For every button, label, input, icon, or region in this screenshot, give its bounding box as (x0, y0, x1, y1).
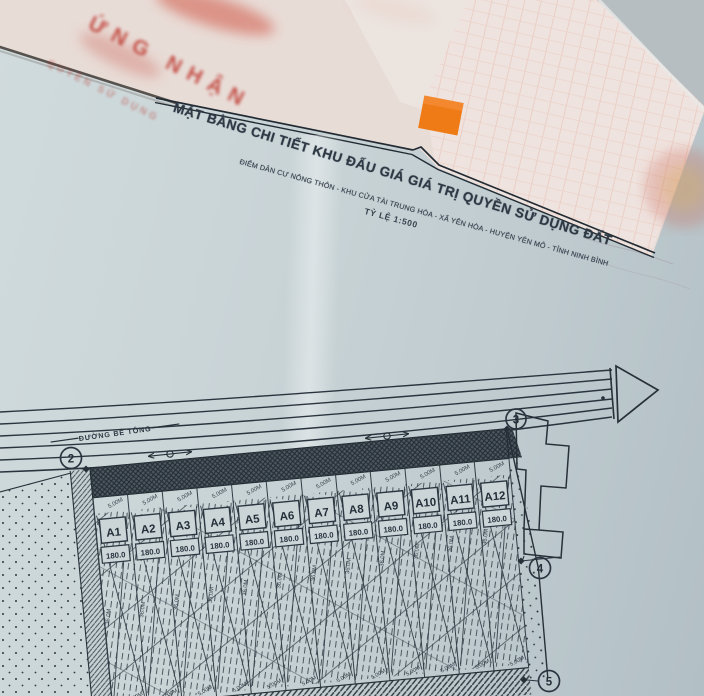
lot-area: 180.0 (314, 530, 335, 541)
lot-id: A3 (175, 520, 191, 533)
lot-id: A1 (106, 526, 122, 539)
road-end-bar (610, 368, 614, 419)
lot-id: A7 (314, 507, 330, 520)
lot-width-dim: 5.00M (419, 467, 436, 480)
lot-area: 180.0 (348, 527, 369, 538)
lot-area: 180.0 (279, 534, 300, 545)
lot-width-dim: 5.00M (315, 477, 332, 490)
lot-area: 180.0 (140, 547, 161, 558)
lot-width-dim: 5.00M (107, 497, 124, 510)
lot-area: 180.0 (452, 517, 473, 528)
road-direction-arrowhead (616, 366, 658, 422)
lot-width-dim: 5.00M (177, 490, 194, 503)
lot-area: 180.0 (487, 514, 508, 525)
lot-width-dim: 5.00M (489, 461, 506, 474)
lot-width-dim: 5.00M (142, 494, 159, 507)
lot-id: A5 (244, 513, 260, 526)
lot-width-dim: 5.00M (211, 487, 228, 500)
site-plan-drawing: ĐƯỜNG BÊ TÔNG (0, 0, 704, 696)
lot-width-dim: 5.00M (454, 464, 471, 477)
survey-point-2-label: 2 (68, 454, 74, 466)
lot-area: 180.0 (244, 537, 265, 548)
survey-point-5-label: 5 (546, 677, 553, 689)
lot-block: 5.00M5.00MA1180.036.0M5.00M5.00MA2180.03… (70, 427, 550, 696)
lot-id: A11 (450, 493, 472, 507)
lot-id: A8 (348, 503, 364, 516)
lot-width-dim: 5.00M (281, 480, 298, 493)
road-station-arrow-1 (148, 449, 192, 460)
lot-area: 180.0 (106, 550, 127, 561)
lot-area: 180.0 (418, 521, 439, 532)
lot-id: A4 (210, 517, 226, 530)
lot-width-dim: 5.00M (350, 474, 367, 487)
adjacent-building-outline (516, 413, 569, 562)
photographed-site-plan: ĐƯỜNG BÊ TÔNG (0, 0, 704, 696)
lot-area: 180.0 (383, 524, 404, 535)
survey-point-4-label: 4 (537, 564, 544, 576)
lot-width-dim: 5.00M (385, 471, 402, 484)
lot-id: A6 (279, 510, 295, 523)
survey-point-3-label: 3 (513, 415, 519, 427)
lot-area: 180.0 (210, 540, 231, 551)
lot-id: A12 (484, 490, 506, 504)
lot-id: A2 (140, 523, 156, 536)
road-point-dot (601, 396, 605, 400)
lot-width-dim: 5.00M (246, 484, 263, 497)
lot-area: 180.0 (175, 543, 196, 554)
lot-id: A9 (383, 500, 399, 513)
lot-id: A10 (415, 497, 437, 511)
